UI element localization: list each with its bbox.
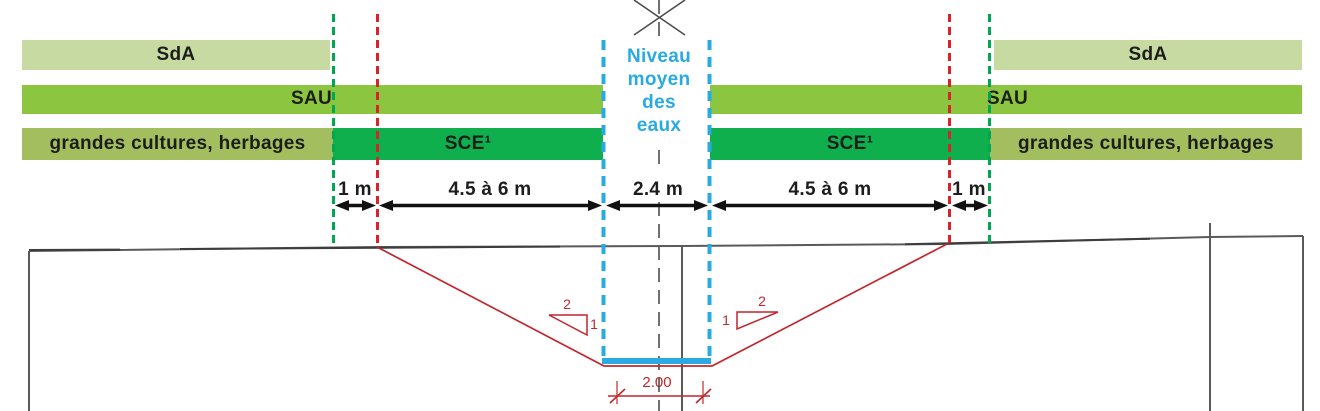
sce-zone-right-bar: SCE¹	[710, 128, 990, 160]
center-axis-marker-icon	[634, 0, 685, 35]
dimension-buffer-left-label: 1 m	[310, 179, 400, 201]
mean-water-level-label: Niveau moyen des eaux	[600, 45, 718, 137]
dimension-field-right-label: 4.5 à 6 m	[735, 179, 925, 201]
cultures-zone-right-bar: grandes cultures, herbages	[990, 128, 1302, 160]
sda-zone-right-bar: SdA	[994, 40, 1302, 70]
sda-zone-right-label: SdA	[1129, 44, 1168, 66]
sau-zone-right-label: SAU	[987, 88, 1089, 110]
sce-zone-right-label: SCE¹	[827, 133, 874, 155]
terrain-outline-dark-segments	[29, 239, 1150, 250]
cultures-zone-left-label: grandes cultures, herbages	[50, 133, 306, 155]
sce-zone-left-label: SCE¹	[445, 133, 492, 155]
sda-zone-left-label: SdA	[157, 44, 196, 66]
cultures-zone-right-label: grandes cultures, herbages	[1018, 133, 1274, 155]
dimension-arrows	[335, 200, 988, 211]
channel-excavation-outline	[377, 244, 947, 366]
slope-left-horizontal-value: 2	[556, 296, 578, 312]
sau-zone-left-label: SAU	[230, 88, 332, 110]
sce-zone-left-bar: SCE¹	[333, 128, 603, 160]
slope-left-vertical-value: 1	[586, 316, 602, 332]
buffer-strip-cross-section-diagram: SdA SdA SAU SAU grandes cultures, herbag…	[0, 0, 1320, 411]
slope-indicator-left	[549, 315, 587, 335]
slope-right-vertical-value: 1	[718, 312, 734, 328]
dimension-water-width-label: 2.4 m	[602, 179, 714, 201]
dimension-buffer-right-label: 1 m	[924, 179, 1014, 201]
bottom-width-dimension-label: 2.00	[627, 374, 687, 391]
sda-zone-left-bar: SdA	[22, 40, 330, 70]
dimension-field-left-label: 4.5 à 6 m	[395, 179, 585, 201]
slope-indicator-right	[737, 312, 778, 329]
cultures-zone-left-bar: grandes cultures, herbages	[22, 128, 333, 160]
slope-right-horizontal-value: 2	[751, 293, 773, 309]
